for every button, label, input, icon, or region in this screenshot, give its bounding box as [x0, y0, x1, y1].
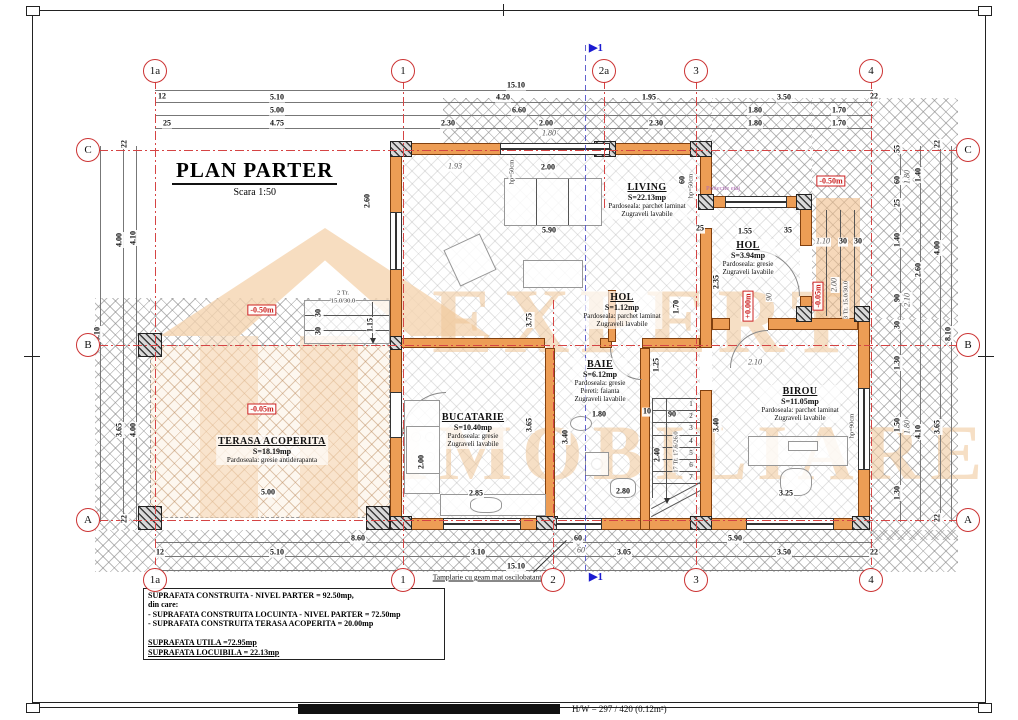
title-block: PLAN PARTER Scara 1:50: [172, 158, 337, 198]
room-label: HOLS=1.12mpPardoseala: parchet laminatZu…: [581, 291, 662, 329]
room-finish: Pardoseala: gresie: [574, 379, 625, 387]
summary-line: SUPRAFATA LOCUIBILA = 22.13mp: [148, 648, 440, 657]
dim-label: 1.80: [747, 107, 763, 116]
dim-label: 15.10: [506, 82, 526, 91]
grid-bubble: A: [76, 508, 100, 532]
grid-bubble: A: [956, 508, 980, 532]
terrace-column: [138, 506, 162, 530]
dim-label: 1.40: [915, 167, 924, 183]
pier: [690, 516, 712, 530]
footer-text: H/W = 297 / 420 (0.12m²): [572, 704, 667, 714]
dim-label: 60: [894, 175, 903, 185]
room-finish: Pardoseala: gresie: [722, 260, 773, 268]
pier: [690, 141, 712, 157]
room-area: S=6.12mp: [574, 370, 625, 379]
room-name: BIROU: [761, 386, 838, 397]
room-finish: Pardoseala: parchet laminat: [761, 406, 838, 414]
room-label: HOLS=3.94mpPardoseala: gresieZugraveli l…: [720, 239, 775, 277]
frame-corner-mark: [26, 6, 40, 16]
wall-bath-north-b: [642, 338, 700, 348]
level-marker: -0.05m: [247, 404, 276, 415]
tech-label: 3 Tr. 15.0/30.0: [842, 281, 849, 319]
dim-label: 2.00: [418, 454, 427, 470]
room-finish: Pardoseala: gresie: [442, 432, 504, 440]
grid-axis-A: [99, 520, 959, 521]
monitor: [788, 441, 818, 451]
summary-line: - SUPRAFATA CONSTRUITA TERASA ACOPERITA …: [148, 619, 440, 628]
frame-corner-mark: [26, 703, 40, 713]
dim-label: 2.10: [904, 292, 913, 308]
dim-label: 3.40: [562, 429, 571, 445]
frame-corner-mark: [978, 703, 992, 713]
stair-number: 5: [689, 449, 693, 457]
dim-label: 4.00: [934, 240, 943, 256]
dim-label: 2.10: [747, 359, 763, 368]
section-marker-top: ▶1: [589, 41, 603, 54]
dim-label: 5.00: [260, 489, 276, 498]
tech-label: hp=90cm: [848, 414, 855, 439]
grid-bubble: 2: [541, 568, 565, 592]
window-living-west: [390, 212, 402, 270]
wall-kitchen-north: [390, 338, 545, 348]
dim-label: 12: [155, 549, 165, 558]
room-finish: Pardoseala: gresie antiderapanta: [218, 456, 326, 464]
dim-label: 60: [679, 175, 688, 185]
room-finish: Pereti: faianta: [574, 387, 625, 395]
level-marker: -0.50m: [247, 305, 276, 316]
room-area: S=18.19mp: [218, 447, 326, 456]
grid-bubble: 4: [859, 59, 883, 83]
room-label: TERASA ACOPERITAS=18.19mpPardoseala: gre…: [216, 435, 328, 465]
grid-bubble: B: [956, 333, 980, 357]
room-finish: Pardoseala: parchet laminat: [583, 312, 660, 320]
grid-axis-C: [99, 150, 959, 151]
pier: [390, 336, 402, 350]
dim-label: 2.30: [648, 120, 664, 129]
room-name: BUCATARIE: [442, 412, 504, 423]
room-name: LIVING: [608, 182, 685, 193]
dim-label: 3.05: [616, 549, 632, 558]
room-finish: Zugraveli lavabile: [583, 320, 660, 328]
dim-label: 90: [667, 411, 677, 420]
room-name: HOL: [583, 292, 660, 303]
room-finish: Pardoseala: parchet laminat: [608, 202, 685, 210]
terrace-column: [366, 506, 390, 530]
dim-label: 1.70: [831, 120, 847, 129]
room-label: BUCATARIES=10.40mpPardoseala: gresieZugr…: [440, 411, 506, 449]
window-office-east: [858, 388, 870, 470]
dim-label: 2.80: [615, 488, 631, 497]
porch-step: [854, 210, 855, 316]
bath-sink: [570, 416, 592, 431]
grid-axis-B: [99, 345, 959, 346]
dim-label: 60: [576, 547, 586, 556]
room-name: TERASA ACOPERITA: [218, 436, 326, 447]
dim-label: 22: [934, 139, 943, 149]
dim-label: 1.25: [653, 357, 662, 373]
room-label: BAIES=6.12mpPardoseala: gresiePereti: fa…: [572, 358, 627, 404]
stair-number: 6: [689, 461, 693, 469]
frame-mid-tick: [503, 4, 504, 16]
wall-hall-office-b: [768, 318, 858, 330]
stair-number: 7: [689, 473, 693, 481]
dim-label: 22: [869, 549, 879, 558]
grid-axis-2a: [604, 80, 605, 210]
dim-label: 1.70: [673, 299, 682, 315]
dim-label: 55: [894, 144, 903, 154]
footer-scale-bar: [298, 704, 560, 714]
pier: [390, 516, 412, 530]
dim-label: 90: [894, 293, 903, 303]
dim-label: 2.00: [538, 120, 554, 129]
dim-label: 5.10: [269, 94, 285, 103]
dim-label: 4.00: [116, 232, 125, 248]
stair-number: 4: [689, 437, 693, 445]
dim-label: 25: [695, 225, 705, 234]
dim-label: 22: [934, 513, 943, 523]
pier: [698, 194, 714, 210]
dim-label: 5.90: [727, 535, 743, 544]
tech-label: 2 Tr.: [337, 289, 349, 296]
room-finish: Zugraveli lavabile: [761, 414, 838, 422]
dim-label: 22: [121, 514, 130, 524]
dim-label: 3.65: [526, 417, 535, 433]
dim-label: 60: [573, 535, 583, 544]
dim-label: 3.65: [934, 419, 943, 435]
wall-axis3-b: [700, 228, 712, 348]
dim-label: 3.25: [778, 490, 794, 499]
dim-label: 8.60: [350, 535, 366, 544]
summary-line: - SUPRAFATA CONSTRUITA LOCUINTA - NIVEL …: [148, 610, 440, 619]
dim-label: 25: [894, 198, 903, 208]
pier: [854, 306, 870, 322]
frame-mid-tick: [24, 356, 40, 357]
dim-label: 3.65: [116, 422, 125, 438]
kitchen-sink: [470, 497, 502, 513]
stair-number: 1: [689, 400, 693, 408]
frame-corner-mark: [978, 6, 992, 16]
grid-bubble: C: [956, 138, 980, 162]
dim-label: 1.15: [367, 317, 376, 333]
wall-hall-office-a: [712, 318, 730, 330]
tech-label: hp=50cm: [508, 160, 515, 185]
dim-label: 30: [838, 238, 848, 247]
dim-label: 12: [157, 93, 167, 102]
door-kitchen-west: [390, 392, 402, 438]
pier: [796, 306, 812, 322]
porch-step: [826, 210, 827, 316]
footer-divider: [32, 702, 986, 703]
stair-number: 3: [689, 424, 693, 432]
room-finish: Zugraveli lavabile: [608, 210, 685, 218]
room-name: BAIE: [574, 359, 625, 370]
dim-label: 8.10: [945, 326, 954, 342]
dim-label: 3.75: [526, 312, 535, 328]
grid-bubble: 1a: [143, 59, 167, 83]
tech-label: 17 Tr. 17.6/26.0: [672, 431, 679, 472]
watermark-body: [300, 336, 358, 518]
grid-bubble: 3: [684, 59, 708, 83]
dim-label: 22: [869, 93, 879, 102]
summary-line: SUPRAFATA CONSTRUITA - NIVEL PARTER = 92…: [148, 591, 440, 600]
dim-label: 4.00: [130, 422, 139, 438]
entry-steps: [304, 300, 390, 344]
dim-label: 30: [315, 308, 324, 318]
pier: [536, 516, 558, 530]
dim-label: 1.80: [541, 130, 557, 139]
dim-label: 1.80: [747, 120, 763, 129]
ground-hatch: [95, 530, 958, 572]
dim-label: 25: [162, 120, 172, 129]
room-area: S=1.12mp: [583, 303, 660, 312]
summary-line: din care:: [148, 600, 440, 609]
grid-bubble: B: [76, 333, 100, 357]
section-marker-bottom: ▶1: [589, 570, 603, 583]
dim-label: 2.85: [468, 490, 484, 499]
dim-label: 1.70: [831, 107, 847, 116]
dim-label: 1.55: [737, 228, 753, 237]
dim-label: 6.60: [511, 107, 527, 116]
washing-machine: [585, 452, 609, 476]
grid-bubble: 4: [859, 568, 883, 592]
dim-label: 4.10: [915, 424, 924, 440]
room-area: S=3.94mp: [722, 251, 773, 260]
room-name: HOL: [722, 240, 773, 251]
dim-label: 2.60: [915, 262, 924, 278]
stair-number: 2: [689, 412, 693, 420]
ground-hatch: [443, 98, 712, 144]
dim-label: 10: [642, 408, 652, 417]
summary-line: [148, 629, 440, 638]
dim-label: 5.90: [541, 227, 557, 236]
dim-label: 2.35: [713, 274, 722, 290]
dim-label: 2.60: [364, 193, 373, 209]
dim-label: 2.00: [831, 277, 840, 293]
dim-label: 90: [766, 292, 775, 302]
dim-label: 2.30: [440, 120, 456, 129]
dim-label: 3.50: [776, 94, 792, 103]
dim-label: 30: [315, 326, 324, 336]
grid-bubble: 1a: [143, 568, 167, 592]
dim-label: 1.95: [641, 94, 657, 103]
grid-axis-4: [871, 80, 872, 572]
level-marker: -0.05m: [813, 281, 824, 310]
dim-label: 1.30: [894, 355, 903, 371]
area-summary-box: SUPRAFATA CONSTRUITA - NIVEL PARTER = 92…: [143, 588, 445, 660]
summary-line: SUPRAFATA UTILA =72.95mp: [148, 638, 440, 647]
stair-arrow-head: [664, 498, 670, 504]
plan-title: PLAN PARTER: [172, 158, 337, 185]
grid-axis-2: [553, 300, 554, 572]
dim-label: 3.10: [470, 549, 486, 558]
dim-label: 4.10: [130, 230, 139, 246]
dim-label: 4.20: [495, 94, 511, 103]
dim-label: 1.93: [447, 163, 463, 172]
dim-label: 2.40: [654, 447, 663, 463]
coffee-table: [523, 260, 583, 288]
dim-label: 1.40: [894, 232, 903, 248]
level-marker: +0.00m: [743, 290, 754, 321]
room-area: S=11.05mp: [761, 397, 838, 406]
sofa: [504, 178, 602, 226]
dim-label: 2.00: [540, 164, 556, 173]
plan-scale: Scara 1:50: [172, 187, 337, 198]
room-finish: Zugraveli lavabile: [722, 268, 773, 276]
grid-bubble: 1: [391, 59, 415, 83]
dim-label: 5.00: [269, 107, 285, 116]
dim-label: 1.80: [904, 169, 913, 185]
dim-label: 15.10: [506, 563, 526, 572]
drawing-sheet: EXPERT IMOBILIARE: [0, 0, 1018, 720]
dim-label: 3.50: [776, 549, 792, 558]
room-area: S=10.40mp: [442, 423, 504, 432]
joinery-note: Tamplarie cu geam mat oscilobatant: [433, 573, 542, 582]
pier: [796, 194, 812, 210]
tech-label: 15.0/30.0: [331, 297, 356, 304]
room-label: BIROUS=11.05mpPardoseala: parchet lamina…: [759, 385, 840, 423]
dim-label: 1.50: [894, 417, 903, 433]
room-finish: Zugraveli lavabile: [442, 440, 504, 448]
steps-arrow-head: [370, 338, 376, 344]
frame-mid-tick: [978, 356, 994, 357]
grid-axis-3: [696, 80, 697, 572]
dim-label: 3.40: [713, 417, 722, 433]
dim-label: 1.80: [904, 419, 913, 435]
dim-label: 1.30: [894, 485, 903, 501]
watermark-body: [200, 336, 258, 518]
grid-bubble: 1: [391, 568, 415, 592]
pier: [390, 141, 412, 157]
projection-note: Proiectie etaj: [706, 185, 740, 192]
grid-bubble: 3: [684, 568, 708, 592]
dim-label: 4.75: [269, 120, 285, 129]
wall-axis3-c: [700, 390, 712, 530]
grid-axis-1a: [155, 80, 156, 572]
porch-step: [840, 210, 841, 316]
room-label: LIVINGS=22.13mpPardoseala: parchet lamin…: [606, 181, 687, 219]
room-area: S=22.13mp: [608, 193, 685, 202]
dim-label: 30: [894, 320, 903, 330]
dim-label: 1.80: [591, 411, 607, 420]
grid-axis-1: [403, 80, 404, 572]
level-marker: -0.50m: [816, 176, 845, 187]
dim-label: 30: [853, 238, 863, 247]
window-living: [500, 143, 610, 155]
window-hall: [725, 196, 787, 208]
tech-label: hp=50cm: [687, 174, 694, 199]
dim-label: 5.10: [269, 549, 285, 558]
grid-bubble: C: [76, 138, 100, 162]
room-finish: Zugraveli lavabile: [574, 395, 625, 403]
pier: [852, 516, 870, 530]
dim-label: 22: [121, 139, 130, 149]
dim-label: 1.10: [815, 238, 831, 247]
grid-bubble: 2a: [592, 59, 616, 83]
dim-label: 35: [783, 227, 793, 236]
